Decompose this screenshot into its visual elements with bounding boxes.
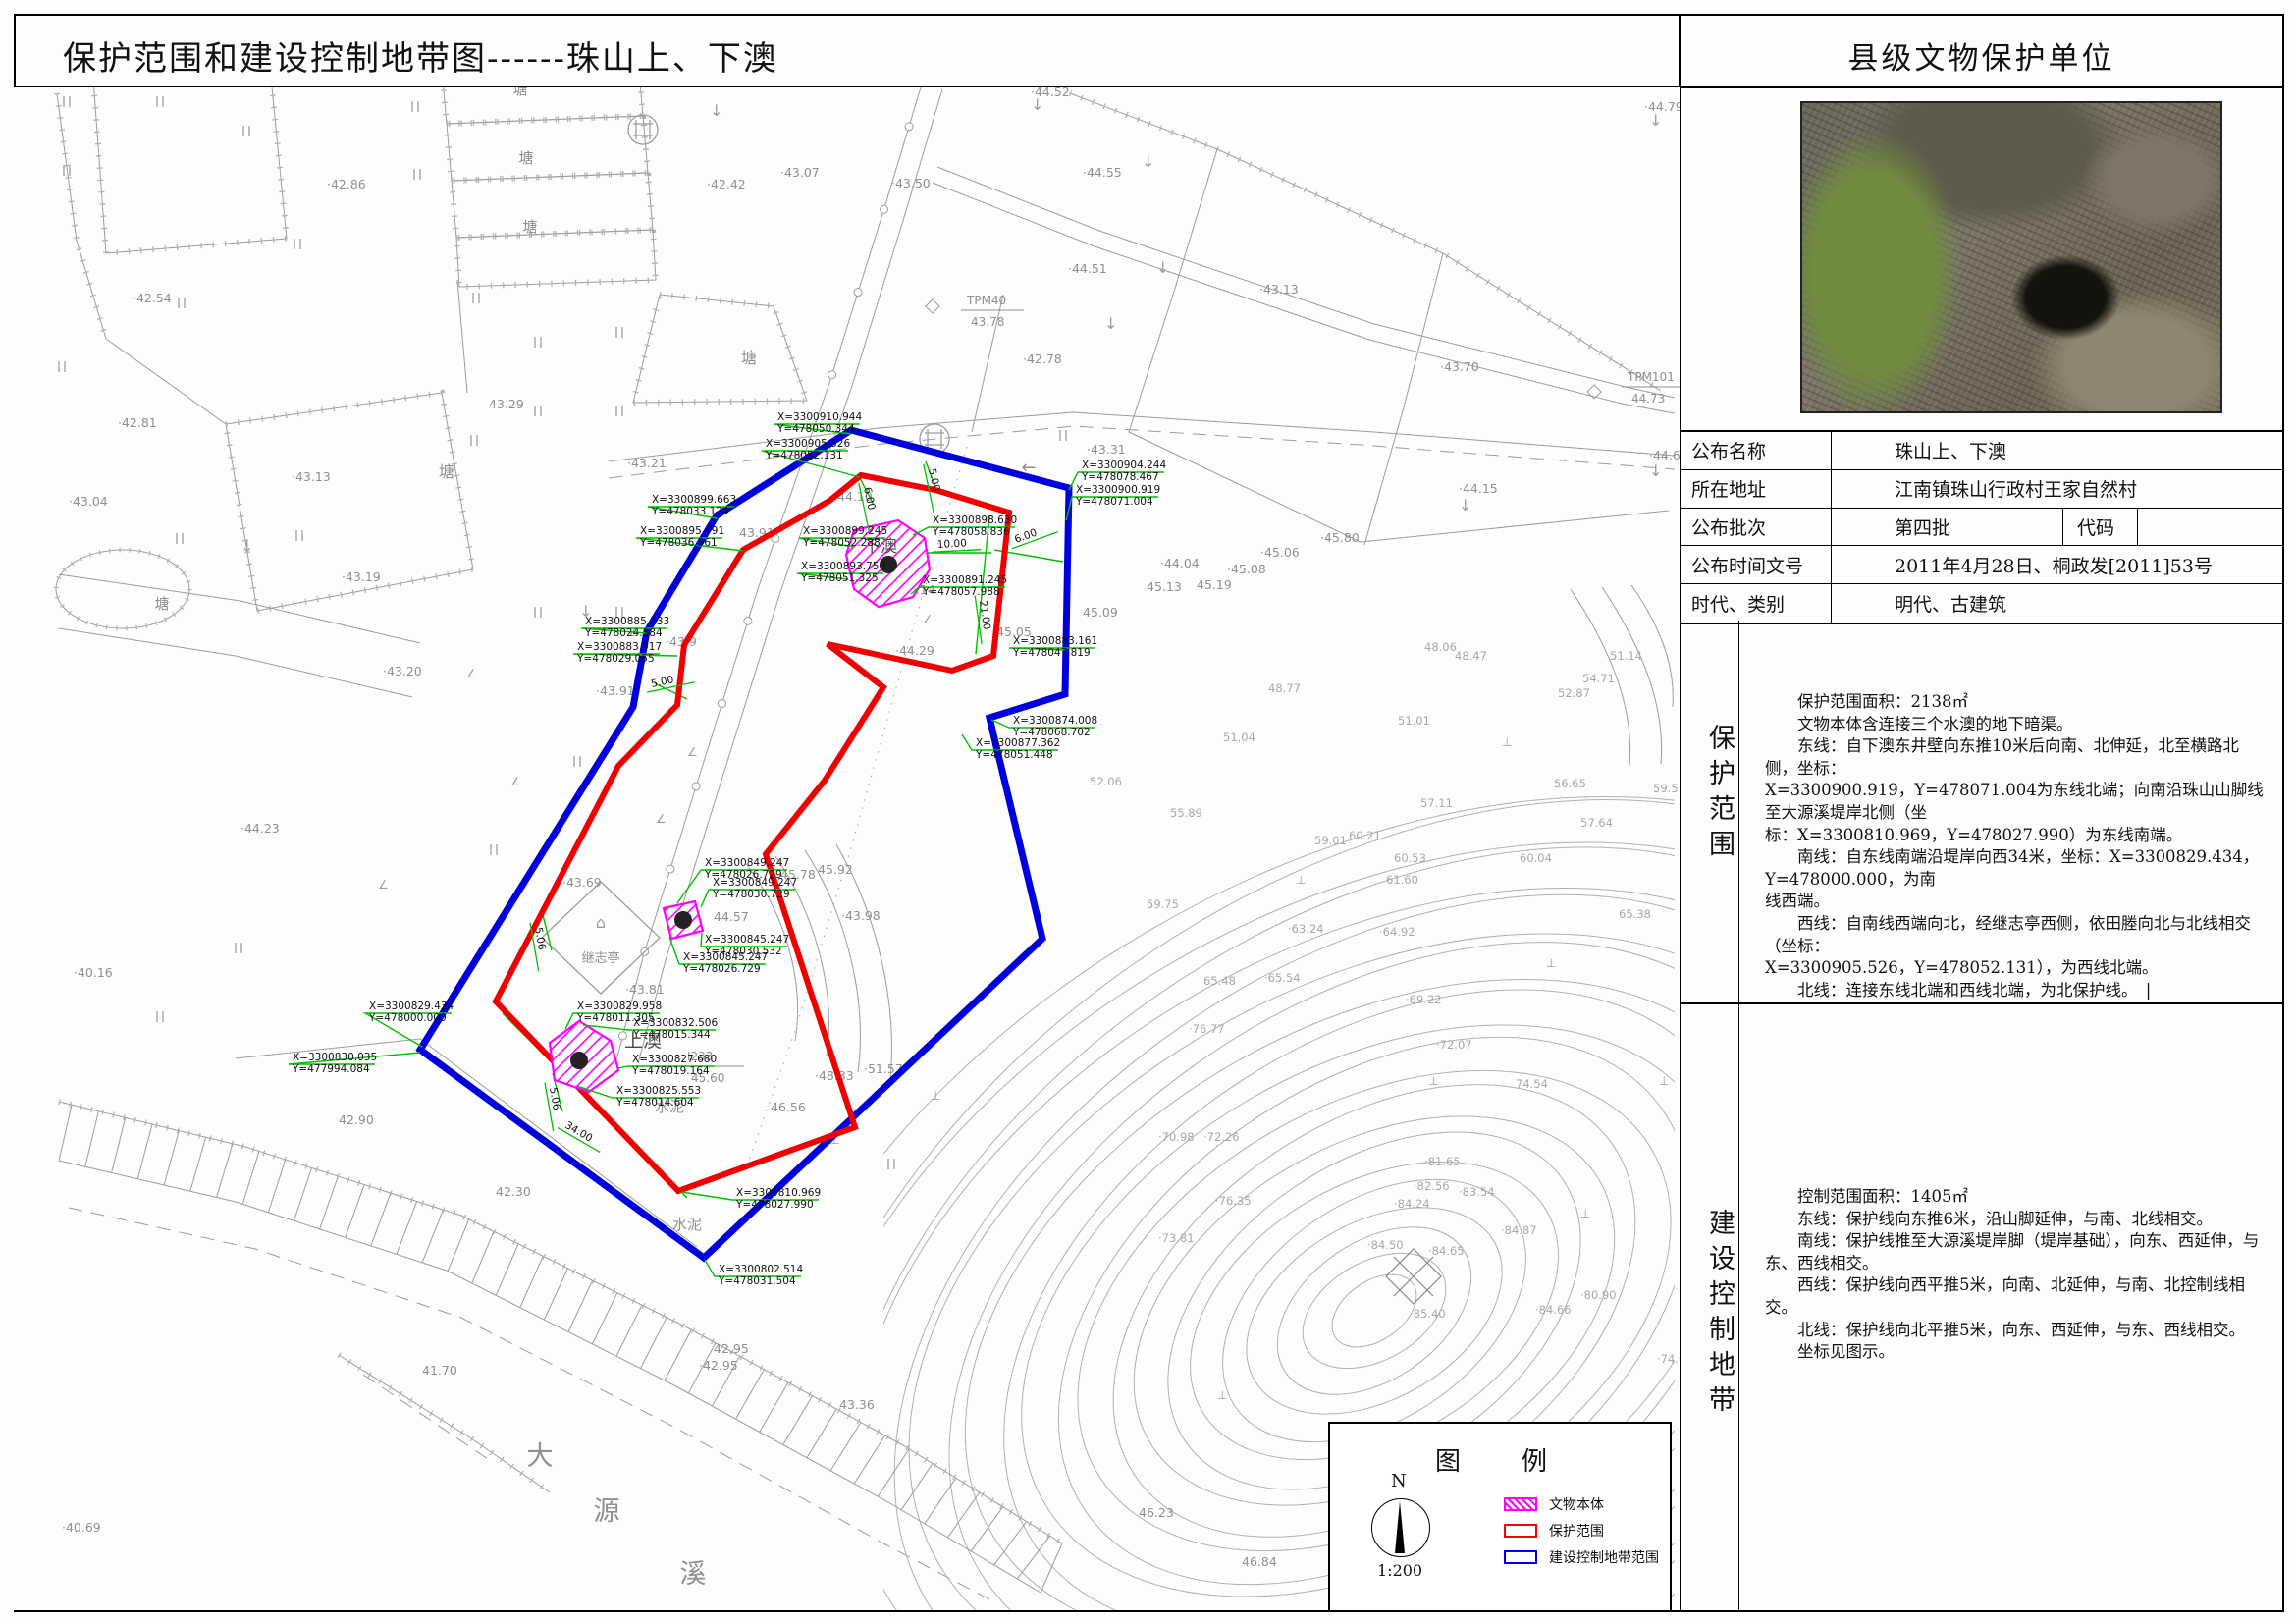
coordinate-label: X=3300810.969 bbox=[736, 1187, 821, 1199]
svg-text:⊥: ⊥ bbox=[931, 1089, 940, 1103]
svg-text:45.09: 45.09 bbox=[1083, 605, 1118, 620]
row-value: 江南镇珠山行政村王家自然村 bbox=[1832, 475, 2284, 502]
row-label: 公布名称 bbox=[1679, 432, 1832, 469]
map-canvas: ↓↓↓↓↓↓↓↓↓↓⊥⊥⊥⊥⊥⊥⊥⊥⊥∠∠∠∠∠∠∠∠⌂·42.86·42.54… bbox=[14, 87, 1680, 1610]
svg-text:·83.54: ·83.54 bbox=[1459, 1185, 1495, 1199]
coordinate-label: X=3300825.553 bbox=[616, 1085, 701, 1097]
coordinate-label: X=3300829.434 bbox=[369, 1001, 454, 1012]
svg-text:·42.95: ·42.95 bbox=[699, 1358, 738, 1373]
svg-text:61.60: 61.60 bbox=[1386, 873, 1418, 887]
svg-text:水泥: 水泥 bbox=[672, 1216, 702, 1233]
svg-text:·64.92: ·64.92 bbox=[1379, 925, 1415, 939]
page-title: 保护范围和建设控制地带图------珠山上、下澳 bbox=[63, 31, 778, 80]
svg-text:42.95: 42.95 bbox=[714, 1341, 749, 1356]
svg-text:源: 源 bbox=[594, 1496, 620, 1527]
svg-text:Y=478019.164: Y=478019.164 bbox=[631, 1065, 710, 1077]
svg-text:57.11: 57.11 bbox=[1420, 796, 1453, 810]
coordinate-label: X=3300893.750 bbox=[801, 561, 885, 572]
svg-text:·69.22: ·69.22 bbox=[1406, 993, 1442, 1006]
legend-item: 保护范围 bbox=[1504, 1517, 1659, 1543]
svg-text:52.06: 52.06 bbox=[1090, 775, 1122, 788]
svg-text:·65.54: ·65.54 bbox=[1264, 971, 1301, 985]
svg-text:·45.80: ·45.80 bbox=[1320, 530, 1360, 545]
svg-text:46.56: 46.56 bbox=[771, 1100, 806, 1114]
svg-text:⌂: ⌂ bbox=[596, 913, 606, 932]
svg-text:Y=478057.988: Y=478057.988 bbox=[922, 586, 1000, 598]
svg-text:65.48: 65.48 bbox=[1203, 974, 1236, 988]
red-swatch-icon bbox=[1504, 1524, 1537, 1538]
svg-text:·43.13: ·43.13 bbox=[1259, 282, 1299, 297]
coordinate-label: X=3300895.791 bbox=[640, 525, 724, 537]
svg-text:·42.81: ·42.81 bbox=[118, 415, 157, 430]
svg-text:55.89: 55.89 bbox=[1170, 806, 1202, 820]
svg-text:⊥: ⊥ bbox=[1296, 873, 1306, 887]
coordinate-label: X=3300883.161 bbox=[1013, 635, 1097, 647]
svg-text:·44.15: ·44.15 bbox=[1459, 481, 1498, 496]
svg-text:Y=478014.604: Y=478014.604 bbox=[615, 1097, 694, 1109]
svg-text:Y=478036.561: Y=478036.561 bbox=[639, 537, 718, 549]
svg-text:TPM101: TPM101 bbox=[1627, 370, 1675, 384]
svg-text:57.64: 57.64 bbox=[1580, 816, 1613, 830]
svg-text:·84.24: ·84.24 bbox=[1394, 1197, 1430, 1211]
svg-text:60.04: 60.04 bbox=[1520, 851, 1552, 865]
svg-text:溪: 溪 bbox=[680, 1559, 707, 1590]
svg-text:Y=478026.729: Y=478026.729 bbox=[682, 963, 761, 975]
protection-scope-section: 保护范围 保护范围面积：2138㎡ 文物本体含连接三个水澳的地下暗渠。 东线：自… bbox=[1679, 621, 2284, 1004]
svg-text:∠: ∠ bbox=[466, 667, 477, 680]
svg-text:46.84: 46.84 bbox=[1242, 1554, 1277, 1569]
row-value: 2011年4月28日、桐政发[2011]53号 bbox=[1832, 552, 2284, 578]
svg-text:·42.78: ·42.78 bbox=[1023, 352, 1062, 366]
svg-text:·43.98: ·43.98 bbox=[841, 908, 881, 923]
svg-text:↓: ↓ bbox=[710, 101, 722, 120]
control-zone-text: 控制范围面积：1405㎡ 东线：保护线向东推6米，沿山脚延伸，与南、北线相交。 … bbox=[1765, 1186, 2268, 1364]
svg-text:48.47: 48.47 bbox=[1455, 649, 1487, 663]
svg-text:65.38: 65.38 bbox=[1619, 907, 1651, 921]
svg-text:48.06: 48.06 bbox=[1424, 640, 1457, 654]
svg-text:59.01: 59.01 bbox=[1314, 834, 1347, 847]
svg-text:⊥: ⊥ bbox=[1428, 1074, 1438, 1088]
svg-text:·63.24: ·63.24 bbox=[1288, 922, 1324, 936]
row-label: 公布时间文号 bbox=[1679, 546, 1832, 583]
svg-text:·43.13: ·43.13 bbox=[292, 469, 331, 484]
svg-text:·72.07: ·72.07 bbox=[1436, 1038, 1472, 1052]
row-value: 明代、古建筑 bbox=[1832, 590, 2284, 617]
svg-text:·73.81: ·73.81 bbox=[1158, 1231, 1195, 1245]
row-value: 珠山上、下澳 bbox=[1832, 437, 2284, 463]
svg-text:·43.70: ·43.70 bbox=[1440, 359, 1479, 374]
legend-item: 文物本体 bbox=[1504, 1490, 1659, 1517]
svg-text:·43.31: ·43.31 bbox=[1087, 442, 1126, 457]
svg-text:51.14: 51.14 bbox=[1610, 649, 1642, 663]
svg-text:56.65: 56.65 bbox=[1554, 777, 1586, 790]
svg-text:⊥: ⊥ bbox=[1502, 735, 1512, 749]
svg-text:Y=478015.344: Y=478015.344 bbox=[632, 1029, 711, 1041]
svg-text:Y=478033.124: Y=478033.124 bbox=[651, 506, 729, 517]
control-zone-side-label: 建设控制地带 bbox=[1679, 1209, 1738, 1421]
svg-text:10.00: 10.00 bbox=[937, 537, 968, 551]
svg-text:·43.19: ·43.19 bbox=[342, 569, 381, 584]
svg-text:Y=478051.448: Y=478051.448 bbox=[975, 749, 1053, 761]
svg-text:·72.26: ·72.26 bbox=[1203, 1130, 1240, 1144]
svg-text:·40.16: ·40.16 bbox=[74, 965, 113, 980]
svg-text:Y=478078.467: Y=478078.467 bbox=[1081, 471, 1159, 483]
coordinate-label: X=3300899.663 bbox=[652, 494, 736, 506]
coordinate-label: X=3300845.247 bbox=[705, 934, 789, 946]
svg-text:54.71: 54.71 bbox=[1582, 672, 1615, 685]
coordinate-label: X=3300891.245 bbox=[923, 574, 1007, 586]
svg-text:·84.65: ·84.65 bbox=[1428, 1244, 1465, 1258]
coordinate-label: X=3300827.680 bbox=[632, 1054, 717, 1065]
svg-text:Y=478052.288: Y=478052.288 bbox=[802, 537, 881, 549]
svg-text:⊥: ⊥ bbox=[1546, 956, 1556, 970]
svg-text:·45.06: ·45.06 bbox=[1260, 545, 1300, 560]
svg-text:·74.04: ·74.04 bbox=[1657, 1352, 1680, 1366]
coordinate-label: X=3300904.244 bbox=[1082, 460, 1166, 471]
svg-text:59.75: 59.75 bbox=[1147, 897, 1179, 911]
svg-text:Y=478071.004: Y=478071.004 bbox=[1075, 496, 1153, 508]
svg-text:Y=478051.325: Y=478051.325 bbox=[800, 572, 879, 584]
svg-text:·85.40: ·85.40 bbox=[1410, 1307, 1446, 1321]
svg-text:↓: ↓ bbox=[1649, 461, 1662, 480]
svg-text:·84.87: ·84.87 bbox=[1501, 1223, 1537, 1237]
info-table: 公布名称 珠山上、下澳 所在地址 江南镇珠山行政村王家自然村 公布批次 第四批 … bbox=[1679, 430, 2284, 624]
coordinate-label: X=3300898.630 bbox=[933, 514, 1017, 526]
coordinate-label: X=3300877.362 bbox=[976, 737, 1060, 749]
svg-text:44.73: 44.73 bbox=[1631, 392, 1665, 406]
legend-box: 图 例 N 1:200 文物本体保护范围建设控制地带范围 bbox=[1328, 1422, 1672, 1612]
svg-text:42.90: 42.90 bbox=[339, 1112, 374, 1127]
svg-text:大: 大 bbox=[527, 1441, 554, 1472]
svg-text:TPM40: TPM40 bbox=[966, 294, 1006, 307]
svg-text:45.19: 45.19 bbox=[1197, 577, 1232, 592]
svg-text:·43.04: ·43.04 bbox=[69, 494, 108, 509]
table-row: 公布名称 珠山上、下澳 bbox=[1679, 432, 2284, 470]
svg-text:塘: 塘 bbox=[154, 595, 169, 613]
svg-text:↓: ↓ bbox=[1459, 496, 1471, 514]
coordinate-label: X=3300874.008 bbox=[1013, 715, 1097, 727]
svg-text:59.51: 59.51 bbox=[1653, 782, 1680, 795]
svg-text:·44.23: ·44.23 bbox=[240, 821, 280, 836]
svg-text:·82.56: ·82.56 bbox=[1414, 1179, 1450, 1193]
svg-text:·43.91: ·43.91 bbox=[596, 683, 635, 698]
table-row: 所在地址 江南镇珠山行政村王家自然村 bbox=[1679, 470, 2284, 509]
svg-text:↓: ↓ bbox=[1156, 258, 1169, 277]
row-label: 所在地址 bbox=[1679, 470, 1832, 508]
legend-items: 文物本体保护范围建设控制地带范围 bbox=[1504, 1490, 1659, 1570]
svg-text:42.30: 42.30 bbox=[496, 1184, 531, 1199]
svg-text:·44.63: ·44.63 bbox=[1649, 448, 1680, 462]
hatch-swatch-icon bbox=[1504, 1497, 1537, 1511]
map-scale: 1:200 bbox=[1377, 1561, 1422, 1580]
svg-text:·70.98: ·70.98 bbox=[1158, 1130, 1195, 1144]
svg-text:46.23: 46.23 bbox=[1139, 1505, 1174, 1520]
coordinate-label: X=3300900.919 bbox=[1076, 484, 1160, 496]
svg-text:·76.35: ·76.35 bbox=[1215, 1194, 1252, 1208]
svg-text:Y=478052.131: Y=478052.131 bbox=[765, 450, 843, 461]
table-row: 公布批次 第四批 代码 bbox=[1679, 509, 2284, 547]
svg-text:塘: 塘 bbox=[741, 349, 757, 367]
svg-text:Y=478050.344: Y=478050.344 bbox=[776, 423, 855, 435]
svg-text:·44.52: ·44.52 bbox=[1031, 87, 1070, 99]
blue-swatch-icon bbox=[1504, 1550, 1537, 1564]
svg-text:44.57: 44.57 bbox=[714, 909, 749, 924]
svg-text:·44.55: ·44.55 bbox=[1083, 165, 1122, 180]
svg-text:Y=478031.504: Y=478031.504 bbox=[718, 1275, 796, 1287]
svg-text:·40.69: ·40.69 bbox=[62, 1520, 101, 1535]
svg-text:Y=478027.990: Y=478027.990 bbox=[735, 1199, 814, 1211]
svg-text:·44.04: ·44.04 bbox=[1160, 556, 1200, 570]
svg-text:∠: ∠ bbox=[923, 613, 934, 626]
code-label: 代码 bbox=[2063, 509, 2138, 546]
svg-text:Y=478024.184: Y=478024.184 bbox=[584, 627, 663, 639]
svg-text:塘: 塘 bbox=[522, 218, 537, 236]
svg-text:·76.77: ·76.77 bbox=[1189, 1022, 1225, 1036]
svg-text:45.92: 45.92 bbox=[818, 862, 853, 877]
svg-text:Y=478058.836: Y=478058.836 bbox=[932, 526, 1010, 538]
north-needle-icon bbox=[1395, 1501, 1405, 1553]
svg-text:·80.90: ·80.90 bbox=[1580, 1288, 1617, 1302]
svg-text:Y=478029.055: Y=478029.055 bbox=[576, 653, 655, 665]
coordinate-label: X=3300832.506 bbox=[633, 1017, 718, 1029]
svg-text:51.04: 51.04 bbox=[1223, 731, 1255, 744]
protection-scope-text: 保护范围面积：2138㎡ 文物本体含连接三个水澳的地下暗渠。 东线：自下澳东井壁… bbox=[1765, 691, 2268, 1001]
svg-text:·43.50: ·43.50 bbox=[891, 176, 931, 190]
svg-text:48.77: 48.77 bbox=[1268, 681, 1301, 695]
svg-text:Y=478030.729: Y=478030.729 bbox=[712, 889, 790, 900]
svg-text:43.36: 43.36 bbox=[839, 1397, 875, 1412]
svg-text:Y=477994.084: Y=477994.084 bbox=[292, 1063, 370, 1075]
control-zone-section: 建设控制地带 控制范围面积：1405㎡ 东线：保护线向东推6米，沿山脚延伸，与南… bbox=[1679, 1004, 2284, 1610]
svg-text:·43.21: ·43.21 bbox=[627, 456, 667, 470]
svg-text:Y=478000.000: Y=478000.000 bbox=[368, 1012, 447, 1024]
svg-text:52.87: 52.87 bbox=[1558, 686, 1590, 700]
svg-text:·44.51: ·44.51 bbox=[1068, 261, 1107, 276]
row-label: 时代、类别 bbox=[1679, 584, 1832, 623]
protection-scope-side-label: 保护范围 bbox=[1679, 724, 1738, 865]
svg-text:43.29: 43.29 bbox=[489, 397, 524, 411]
coordinate-label: X=3300885.133 bbox=[585, 616, 669, 627]
coordinate-label: X=3300849.247 bbox=[713, 877, 797, 889]
svg-text:45.13: 45.13 bbox=[1147, 579, 1182, 594]
svg-text:∠: ∠ bbox=[378, 878, 389, 892]
north-label: N bbox=[1391, 1471, 1407, 1491]
svg-text:74.54: 74.54 bbox=[1516, 1077, 1548, 1091]
svg-text:↓: ↓ bbox=[1142, 152, 1154, 171]
svg-text:塘: 塘 bbox=[512, 87, 527, 98]
table-row: 时代、类别 明代、古建筑 bbox=[1679, 584, 2284, 623]
coordinate-label: X=3300849.247 bbox=[705, 857, 789, 869]
svg-text:60.53: 60.53 bbox=[1394, 851, 1426, 865]
svg-text:·42.86: ·42.86 bbox=[327, 177, 366, 191]
svg-text:·43.69: ·43.69 bbox=[562, 875, 602, 890]
svg-text:·43.81: ·43.81 bbox=[625, 982, 665, 997]
coordinate-label: X=3300905.526 bbox=[766, 438, 850, 450]
legend-title: 图 例 bbox=[1330, 1441, 1670, 1478]
svg-text:·42.54: ·42.54 bbox=[133, 291, 172, 305]
svg-text:↓: ↓ bbox=[1104, 314, 1117, 333]
svg-text:51.01: 51.01 bbox=[1398, 714, 1430, 728]
legend-item: 建设控制地带范围 bbox=[1504, 1543, 1659, 1570]
table-row: 公布时间文号 2011年4月28日、桐政发[2011]53号 bbox=[1679, 546, 2284, 584]
svg-text:·45.08: ·45.08 bbox=[1227, 562, 1266, 576]
svg-text:Y=478047.819: Y=478047.819 bbox=[1012, 647, 1091, 659]
svg-text:⊥: ⊥ bbox=[1580, 1207, 1590, 1220]
row-label: 公布批次 bbox=[1679, 509, 1832, 546]
svg-text:继志亭: 继志亭 bbox=[581, 950, 619, 966]
svg-text:·42.42: ·42.42 bbox=[707, 177, 746, 191]
svg-text:⊥: ⊥ bbox=[1659, 1074, 1669, 1088]
coordinate-label: X=3300830.035 bbox=[293, 1052, 377, 1063]
svg-text:↓: ↓ bbox=[240, 537, 253, 556]
svg-text:塘: 塘 bbox=[518, 149, 533, 167]
svg-text:·44.79: ·44.79 bbox=[1644, 99, 1680, 114]
svg-text:·81.65: ·81.65 bbox=[1424, 1155, 1461, 1168]
site-photo bbox=[1800, 101, 2222, 413]
svg-text:·43.20: ·43.20 bbox=[383, 664, 422, 678]
svg-text:43.78: 43.78 bbox=[971, 315, 1004, 329]
drawing-sheet: 保护范围和建设控制地带图------珠山上、下澳 县级文物保护单位 公布名称 珠… bbox=[0, 0, 2296, 1624]
panel-header: 县级文物保护单位 bbox=[1681, 33, 2282, 78]
svg-text:60.21: 60.21 bbox=[1349, 829, 1381, 842]
coordinate-label: X=3300845.247 bbox=[683, 951, 768, 963]
coordinate-label: X=3300910.944 bbox=[777, 411, 862, 423]
row-value: 第四批 bbox=[1832, 509, 2063, 546]
svg-text:⊥: ⊥ bbox=[1217, 1388, 1227, 1402]
svg-text:∠: ∠ bbox=[687, 745, 698, 759]
coordinate-label: X=3300829.958 bbox=[577, 1001, 662, 1012]
svg-text:塘: 塘 bbox=[439, 462, 454, 481]
coordinate-label: X=3300883.517 bbox=[577, 641, 662, 653]
svg-text:·43.07: ·43.07 bbox=[780, 165, 820, 180]
svg-text:·84.66: ·84.66 bbox=[1535, 1303, 1572, 1317]
svg-text:·44.29: ·44.29 bbox=[895, 643, 934, 658]
svg-text:·84.50: ·84.50 bbox=[1367, 1238, 1404, 1252]
svg-text:∠: ∠ bbox=[510, 775, 521, 788]
svg-text:∠: ∠ bbox=[656, 812, 667, 826]
coordinate-label: X=3300899.245 bbox=[803, 525, 887, 537]
coordinate-label: X=3300802.514 bbox=[719, 1264, 803, 1275]
svg-text:41.70: 41.70 bbox=[422, 1363, 457, 1378]
